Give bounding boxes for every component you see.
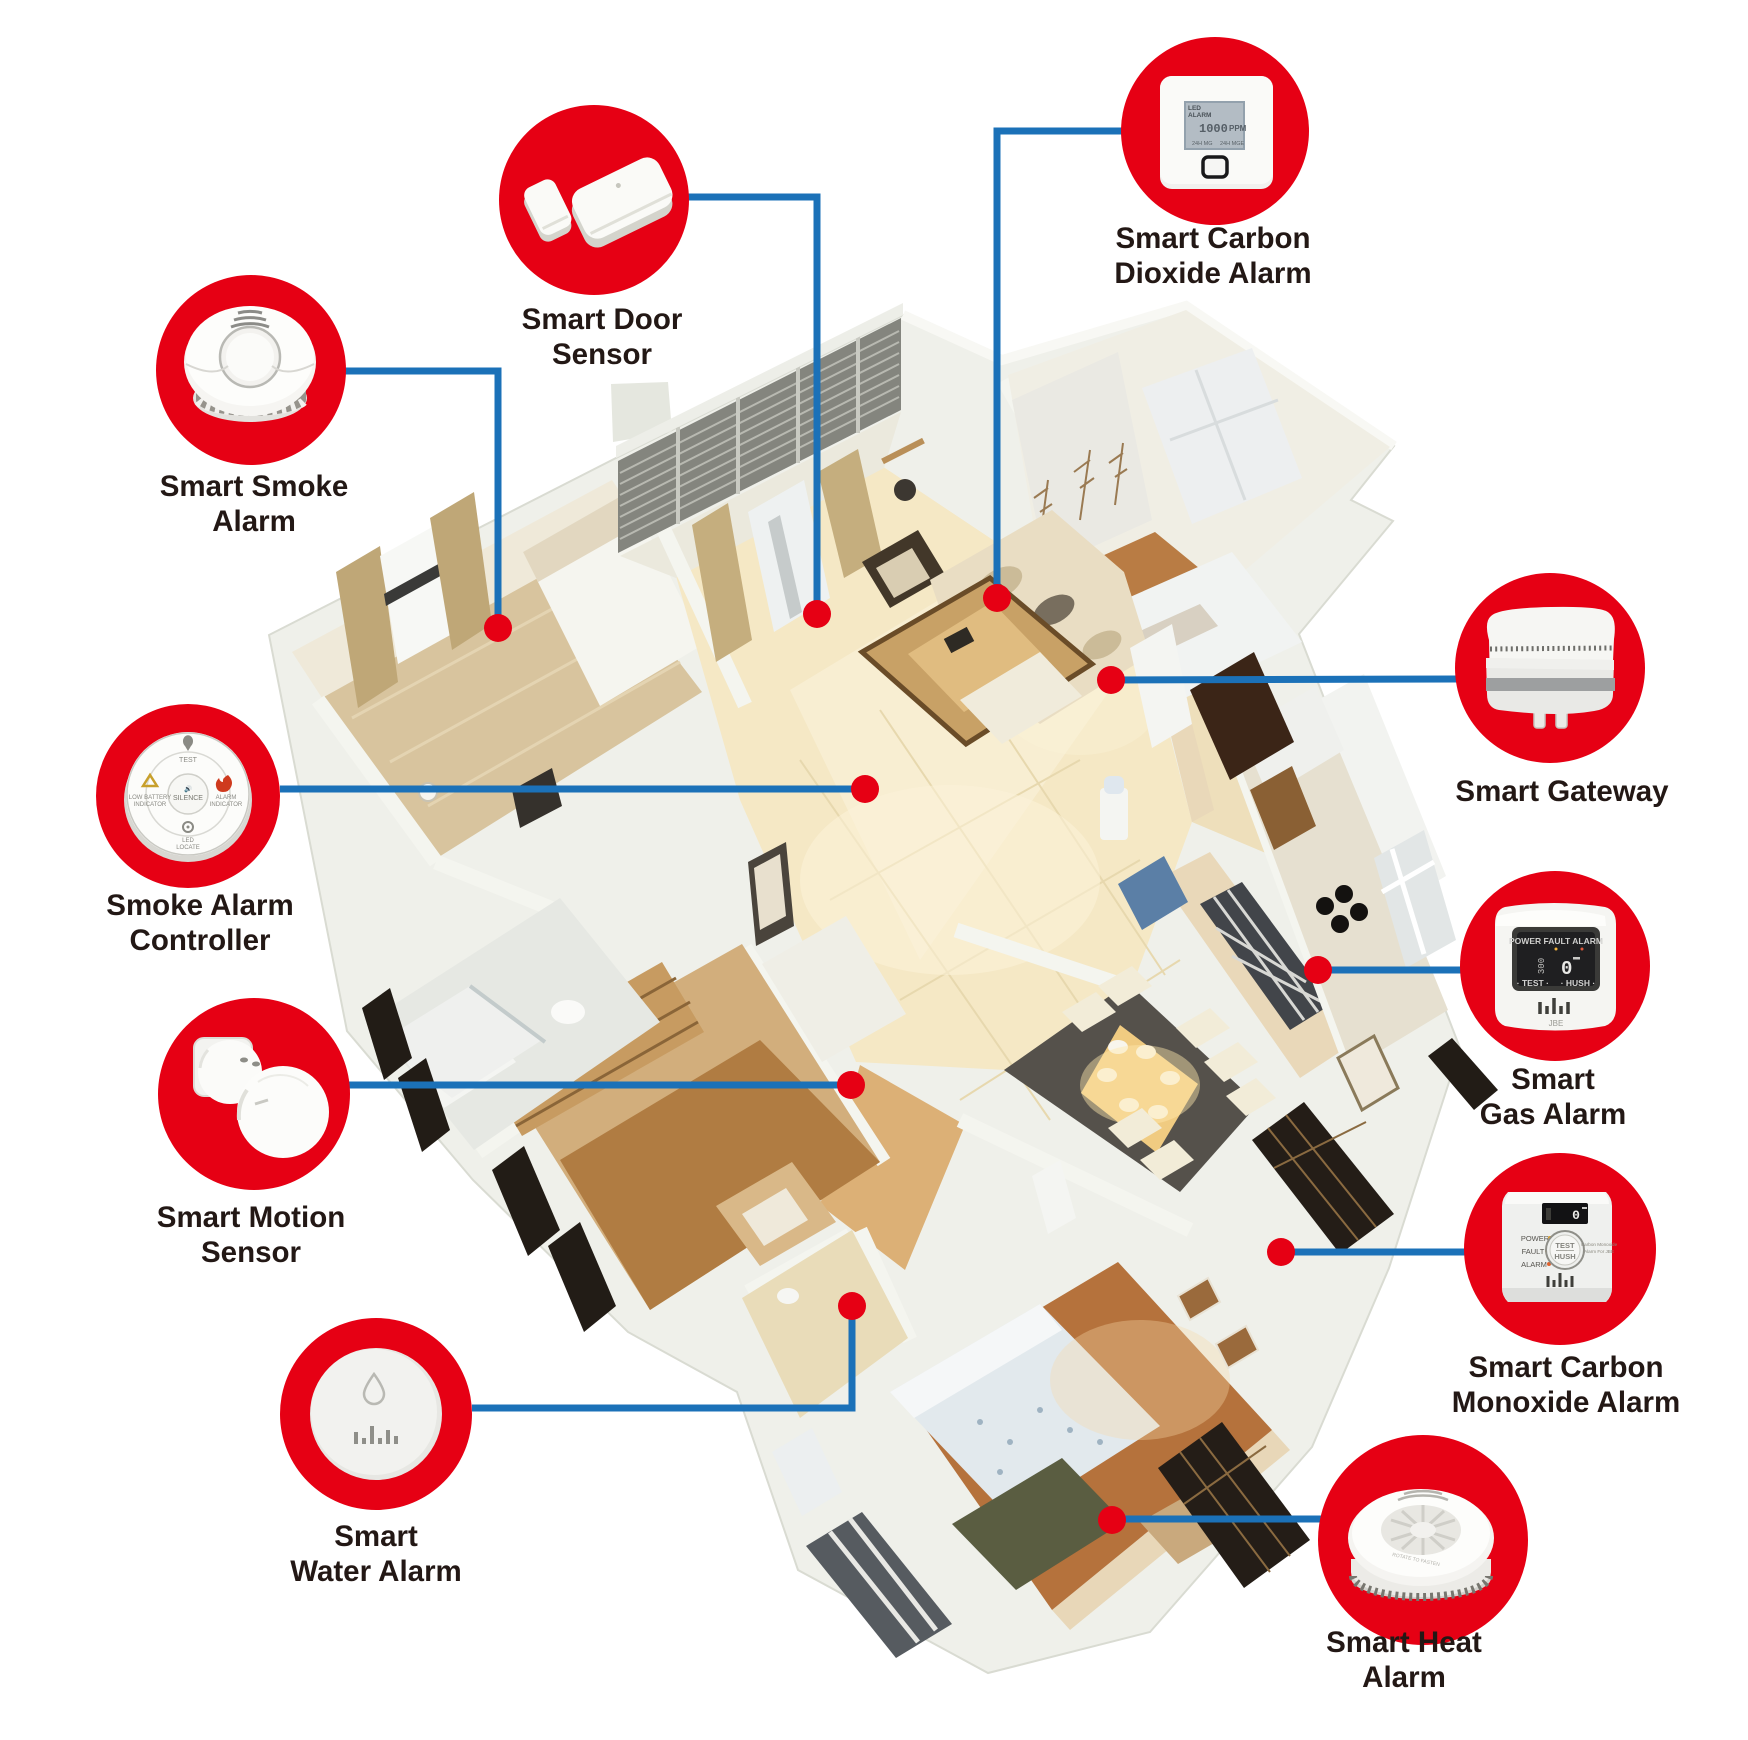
svg-text:300: 300 [1537, 958, 1547, 974]
svg-text:ALARM: ALARM [1188, 112, 1211, 119]
svg-text:LOCATE: LOCATE [176, 845, 200, 851]
svg-text:ALARM: ALARM [216, 795, 237, 801]
svg-text:LED: LED [182, 838, 194, 844]
svg-text:0: 0 [1572, 1208, 1580, 1223]
svg-text:HUSH: HUSH [1554, 1252, 1575, 1261]
svg-text:24H MGE: 24H MGE [1220, 141, 1244, 147]
svg-text:· TEST · · HUSH ·: · TEST · · HUSH · [1517, 978, 1595, 988]
svg-text:0: 0 [1561, 958, 1572, 980]
svg-text:LOW BATTERY: LOW BATTERY [129, 795, 171, 801]
svg-text:FAULT: FAULT [1522, 1247, 1545, 1256]
svg-text:PPM: PPM [1229, 124, 1247, 133]
svg-text:24H MG: 24H MG [1192, 141, 1212, 147]
svg-text:POWER: POWER [1521, 1234, 1550, 1243]
svg-text:SILENCE: SILENCE [173, 795, 203, 802]
svg-text:JBE: JBE [1549, 1019, 1564, 1028]
svg-text:INDICATOR: INDICATOR [134, 802, 167, 808]
svg-text:1000: 1000 [1199, 122, 1228, 136]
svg-text:TEST: TEST [1555, 1241, 1575, 1250]
svg-text:🔊: 🔊 [184, 784, 192, 793]
svg-text:LED: LED [1188, 105, 1201, 112]
svg-text:INDICATOR: INDICATOR [210, 802, 243, 808]
svg-text:TEST: TEST [179, 757, 198, 764]
svg-text:Carbon Monoxide: Carbon Monoxide [1581, 1242, 1618, 1247]
svg-text:Alarm For JBE: Alarm For JBE [1584, 1249, 1614, 1254]
svg-text:ALARM: ALARM [1521, 1260, 1547, 1269]
svg-text:POWER FAULT ALARM: POWER FAULT ALARM [1509, 936, 1603, 946]
